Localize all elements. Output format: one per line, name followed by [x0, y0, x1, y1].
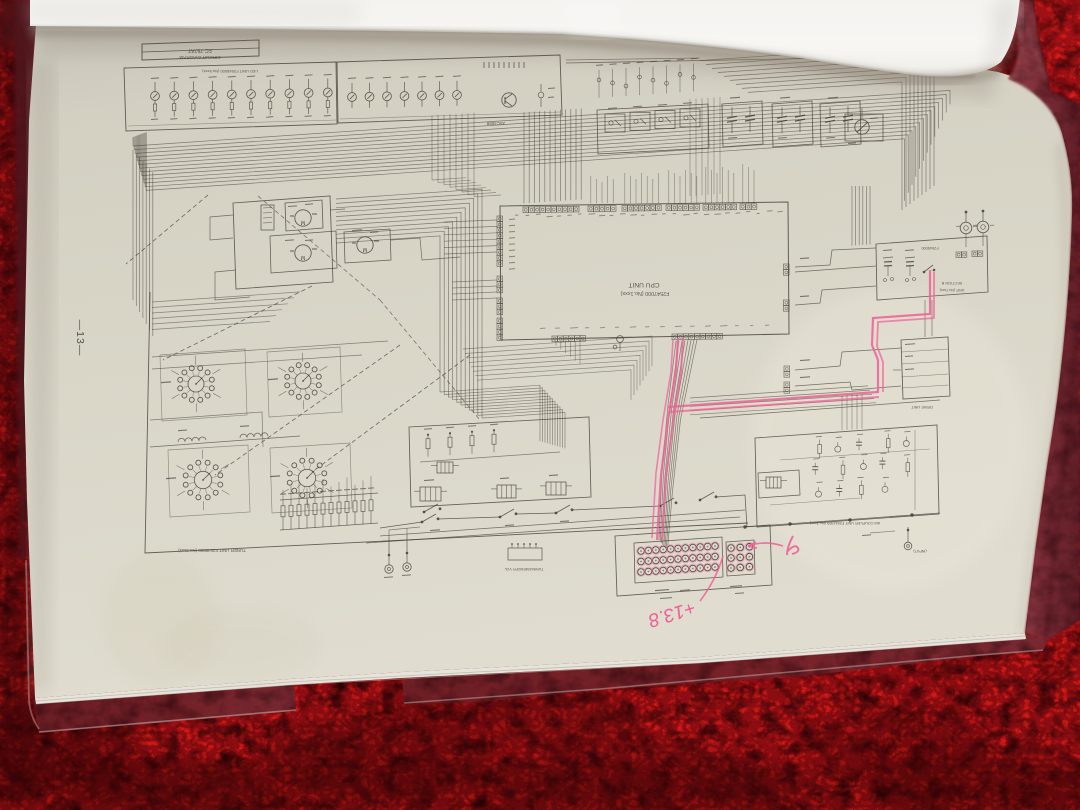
svg-text:DRIVE UNIT: DRIVE UNIT: [911, 405, 933, 409]
svg-text:(INPUT): (INPUT): [913, 549, 926, 553]
svg-text:M: M: [300, 254, 305, 260]
svg-text:F2547000 (No.1xxx): F2547000 (No.1xxx): [620, 290, 669, 296]
svg-text:TUNING/MEMORY VOL: TUNING/MEMORY VOL: [504, 567, 543, 571]
svg-text:AM COUPLER UNIT F2544300 (No.3: AM COUPLER UNIT F2544300 (No.3xxx): [809, 521, 880, 525]
svg-text:SECTION B: SECTION B: [941, 281, 962, 285]
svg-text:CIRCUIT DIAGRAM: CIRCUIT DIAGRAM: [179, 55, 220, 60]
svg-text:—13—: —13—: [74, 320, 86, 357]
svg-text:FC-757AT: FC-757AT: [187, 47, 211, 53]
svg-text:UNIT (No.7xxx): UNIT (No.7xxx): [940, 288, 965, 292]
svg-text:M: M: [362, 246, 367, 252]
svg-text:CPU UNIT: CPU UNIT: [628, 281, 659, 288]
svg-text:TUNER UNIT F2548000 (No.3xxx): TUNER UNIT F2548000 (No.3xxx): [178, 548, 246, 553]
svg-text:F2545000: F2545000: [921, 246, 938, 250]
svg-text:M: M: [300, 219, 305, 225]
svg-text:LED UNIT F2548000 (No.5xxx): LED UNIT F2548000 (No.5xxx): [202, 69, 258, 74]
